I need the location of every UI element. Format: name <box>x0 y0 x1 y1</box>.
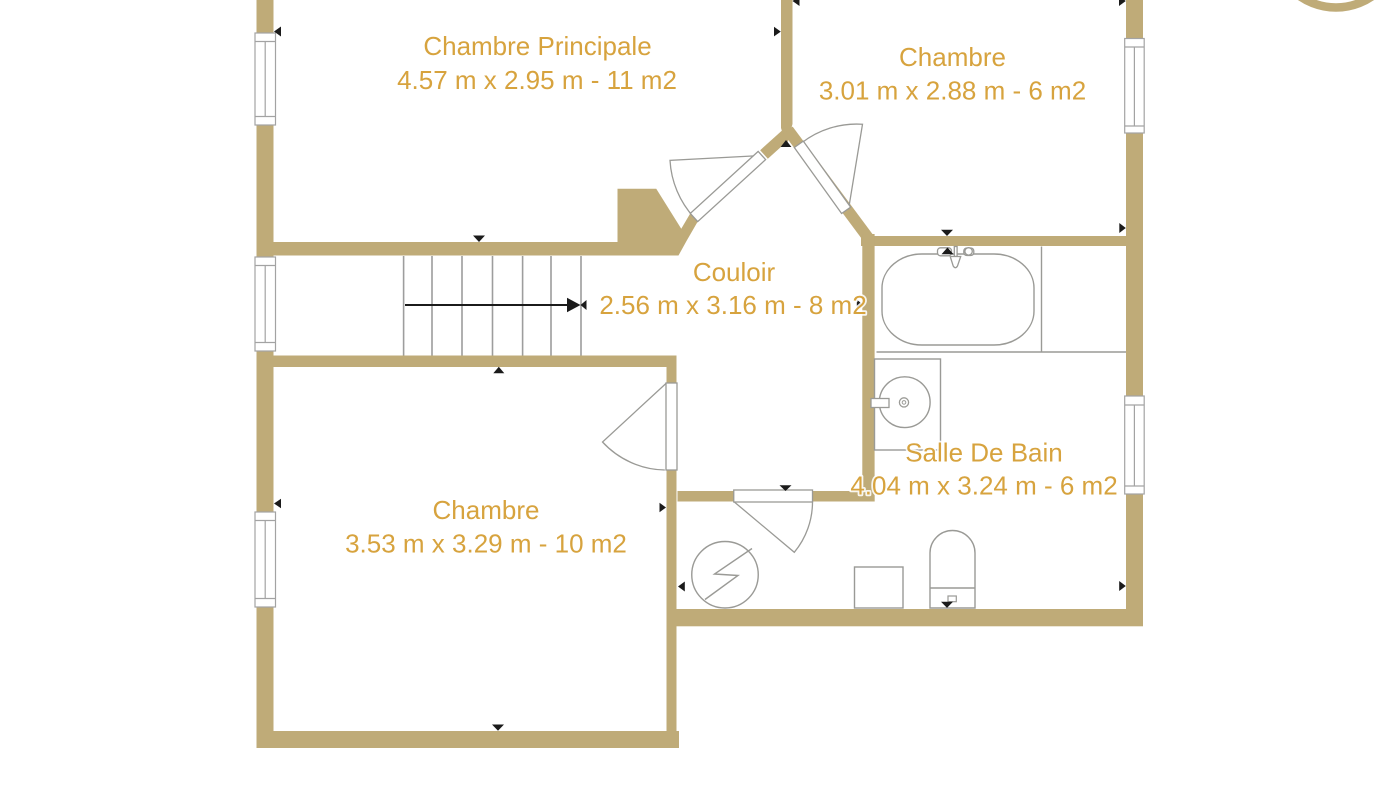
svg-text:4.57 m x 2.95 m - 11 m2: 4.57 m x 2.95 m - 11 m2 <box>397 65 677 95</box>
svg-text:Chambre Principale: Chambre Principale <box>423 31 651 61</box>
svg-text:Couloir: Couloir <box>693 257 776 287</box>
svg-text:3.01 m x 2.88 m - 6 m2: 3.01 m x 2.88 m - 6 m2 <box>819 76 1086 106</box>
svg-text:Salle De Bain: Salle De Bain <box>905 438 1063 468</box>
svg-text:3.53 m x 3.29 m - 10 m2: 3.53 m x 3.29 m - 10 m2 <box>345 529 627 559</box>
svg-text:Chambre: Chambre <box>433 495 540 525</box>
svg-text:2.56 m x 3.16 m - 8 m2: 2.56 m x 3.16 m - 8 m2 <box>599 290 866 320</box>
svg-text:4.04 m x 3.24 m - 6 m2: 4.04 m x 3.24 m - 6 m2 <box>850 471 1117 501</box>
svg-text:Chambre: Chambre <box>899 42 1006 72</box>
